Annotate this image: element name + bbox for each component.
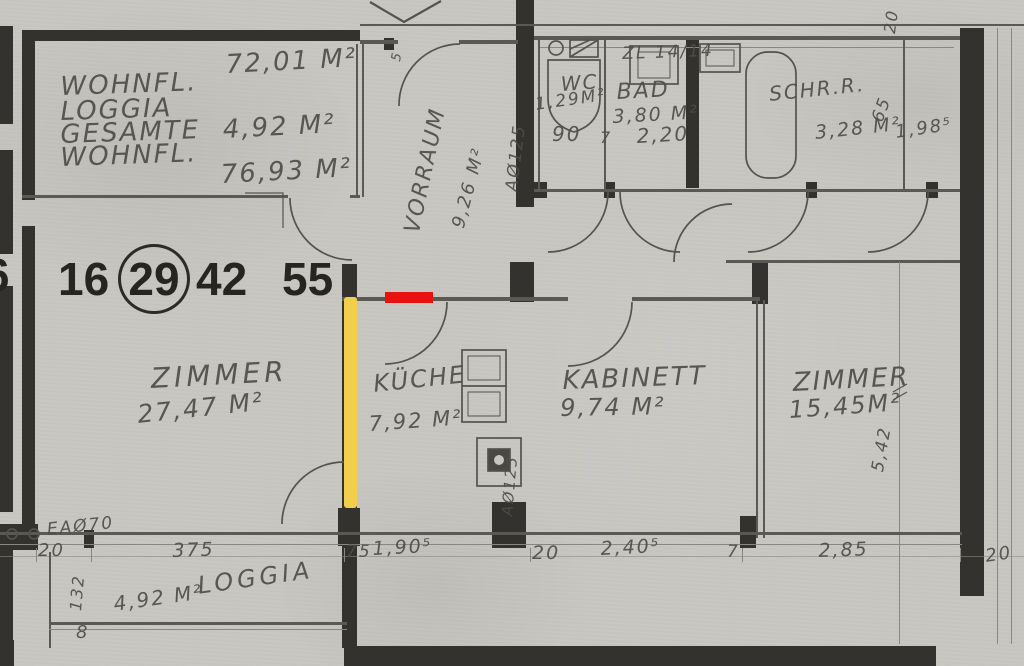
title-wohnfl2-label: WOHNFL.: [60, 138, 198, 173]
dim-bad-width: 2,20: [636, 121, 690, 148]
dim-20-c: 20: [984, 542, 1014, 567]
dim-20-b: 20: [532, 542, 560, 564]
door-arc: [282, 462, 344, 524]
door-arc: [620, 192, 680, 252]
vent-circle-icon: [7, 529, 17, 539]
unit-number-16: 16: [58, 252, 109, 306]
vent-circle-icon: [29, 529, 39, 539]
room-kabinett-area: 9,74 M²: [560, 392, 666, 422]
north-arrow-icon: [370, 1, 441, 22]
floor-plan: WOHNFL. 72,01 M² LOGGIA GESAMTE 4,92 M² …: [0, 0, 1024, 666]
door-arc: [748, 192, 808, 252]
wc-symbol-icon: [549, 41, 563, 55]
dim-bad-small: 7: [600, 128, 612, 147]
door-arc: [548, 192, 608, 252]
door-arc: [568, 302, 632, 366]
bathtub-icon: [746, 52, 796, 178]
dim-190: 1,90⁵: [372, 535, 433, 560]
red-marker: [385, 292, 433, 303]
door-arc: [868, 192, 928, 252]
dim-wc-width: 90: [552, 122, 581, 146]
unit-number-29: 29: [128, 252, 179, 306]
dim-75: 75: [346, 542, 372, 562]
unit-number-55: 55: [282, 252, 333, 306]
dim-7: 7: [727, 542, 740, 562]
dim-8: 8: [76, 622, 89, 643]
kitchen-sink-icon: [468, 356, 500, 380]
dim-240: 2,40⁵: [600, 535, 661, 560]
title-loggia-value: 4,92 M²: [222, 109, 336, 145]
unit-number-29-circle: 29: [118, 244, 190, 314]
room-bad-label: BAD: [616, 77, 670, 105]
dim-132: 132: [66, 574, 88, 612]
kitchen-sink-icon: [468, 392, 500, 416]
door-arc: [385, 302, 447, 364]
door-arc: [399, 44, 460, 106]
dim-285: 2,85: [818, 538, 869, 562]
dim-top-right: 20: [880, 8, 902, 35]
unit-number-partial: 6: [0, 248, 10, 302]
room-kabinett-label: KABINETT: [562, 361, 707, 396]
unit-number-42: 42: [196, 252, 247, 306]
yellow-marker: [344, 297, 357, 508]
leader-line: [245, 193, 283, 228]
door-arc: [290, 198, 352, 260]
vent-hatch-icon: [570, 40, 598, 57]
door-arc: [674, 204, 732, 262]
dim-375: 375: [172, 539, 215, 562]
vent-zl-label: ZL 14/14: [622, 41, 714, 64]
dim-20-a: 20: [38, 540, 65, 561]
